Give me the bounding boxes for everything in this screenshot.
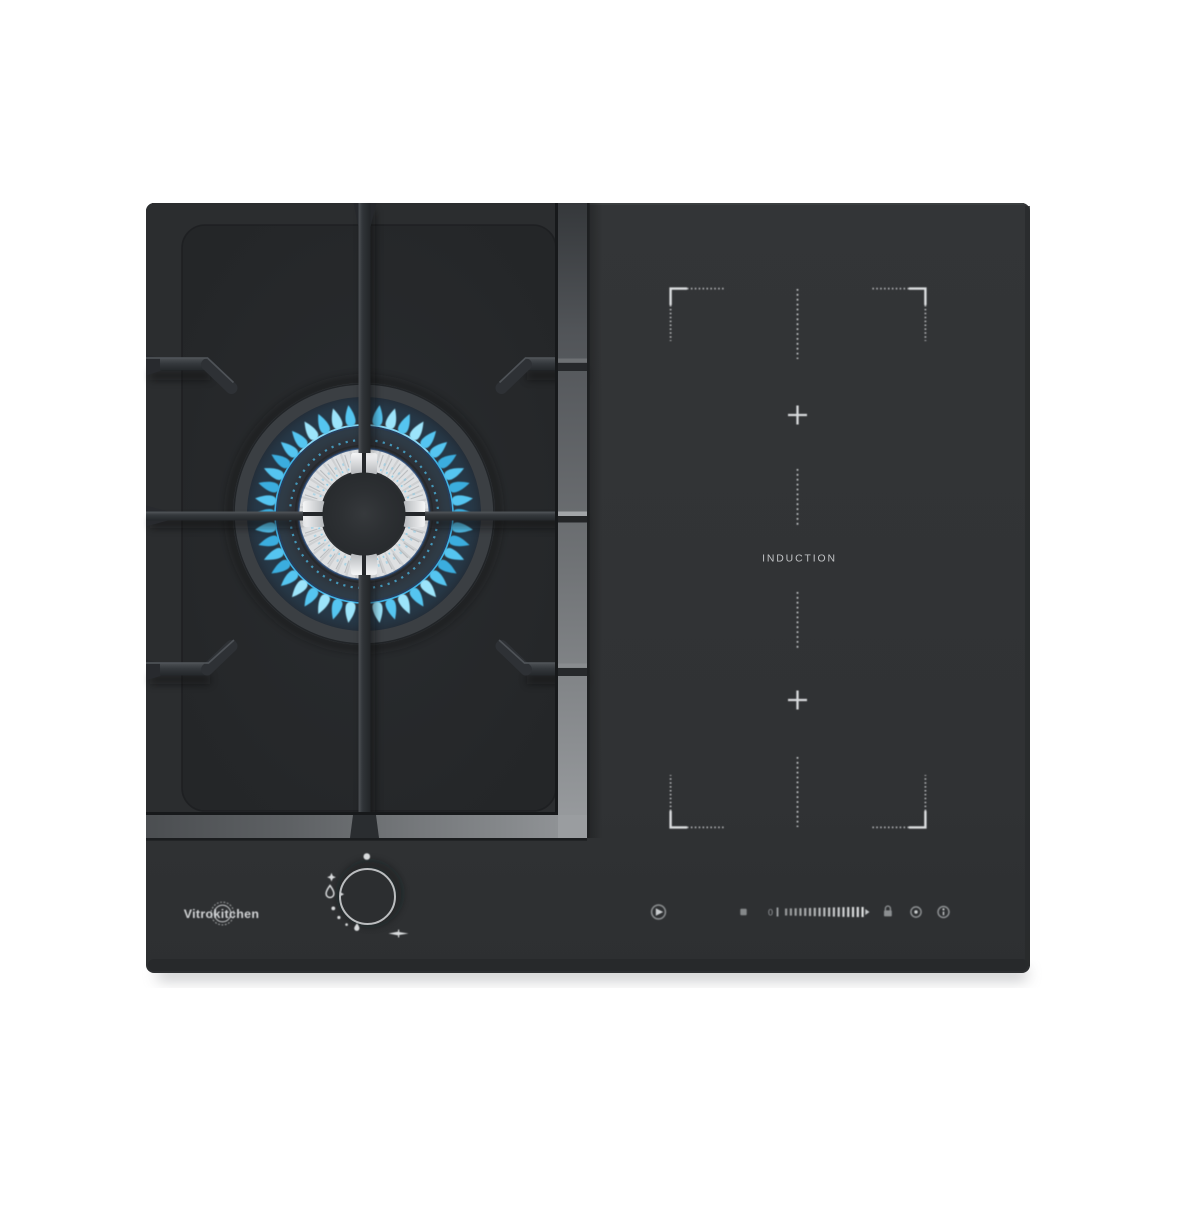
svg-text:0: 0 xyxy=(768,908,773,918)
svg-text:Vitrokitchen: Vitrokitchen xyxy=(184,907,260,921)
svg-text:INDUCTION: INDUCTION xyxy=(762,554,837,565)
